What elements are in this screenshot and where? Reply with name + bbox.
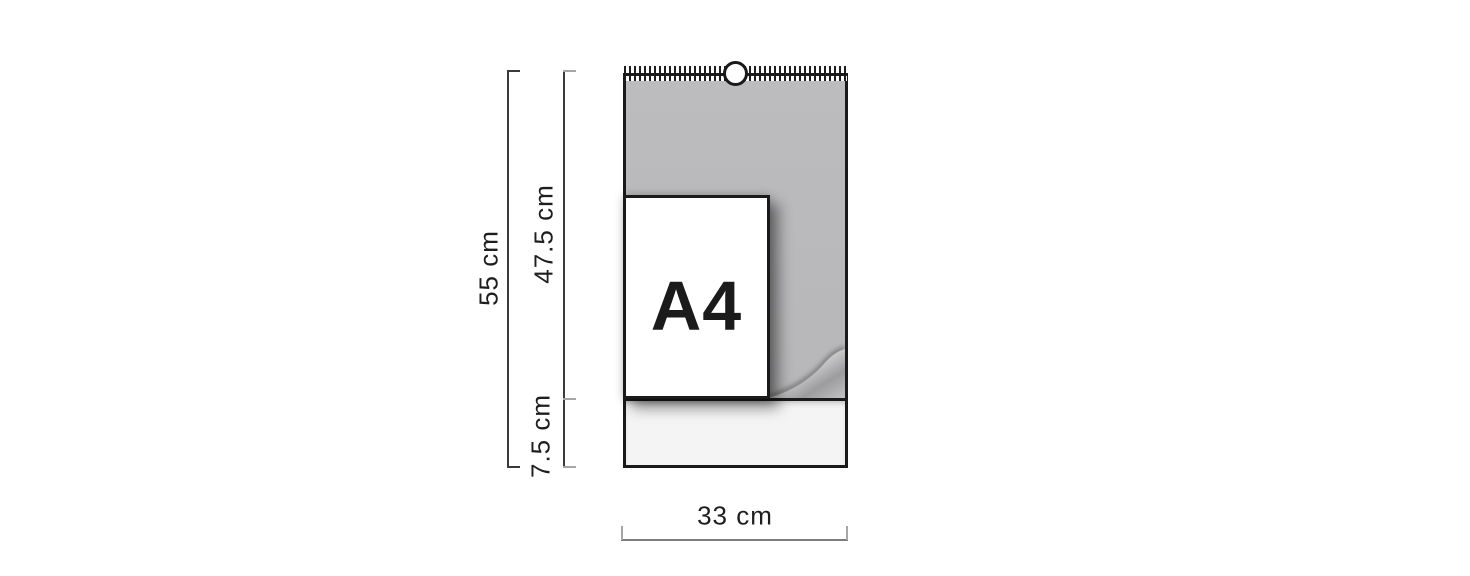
dimension-line-width xyxy=(621,539,848,541)
width-label: 33 cm xyxy=(697,501,773,532)
a4-label: A4 xyxy=(651,248,742,346)
dimension-cap-top xyxy=(563,70,576,72)
hanger-hole-icon xyxy=(723,61,748,86)
a4-reference-sheet: A4 xyxy=(623,195,770,399)
dimension-tick-left xyxy=(621,526,623,540)
total-height-label: 55 cm xyxy=(474,230,505,306)
page-curl-icon xyxy=(765,342,845,398)
dimension-tick-right xyxy=(846,526,848,540)
dimension-cap-top xyxy=(507,70,520,72)
dimension-cap-bottom xyxy=(507,466,520,468)
dimension-line-page-height xyxy=(563,70,565,400)
calendar-footer-strip xyxy=(626,398,845,465)
dimension-line-footer-height xyxy=(563,400,565,468)
dimension-cap-bottom xyxy=(563,466,576,468)
page-height-label: 47.5 cm xyxy=(529,184,560,284)
footer-height-label: 7.5 cm xyxy=(526,394,557,478)
dimension-line-total-height xyxy=(507,70,509,468)
diagram-canvas: 55 cm 47.5 cm 7.5 cm 33 cm xyxy=(0,0,1470,576)
calendar-mockup: A4 xyxy=(623,73,848,468)
